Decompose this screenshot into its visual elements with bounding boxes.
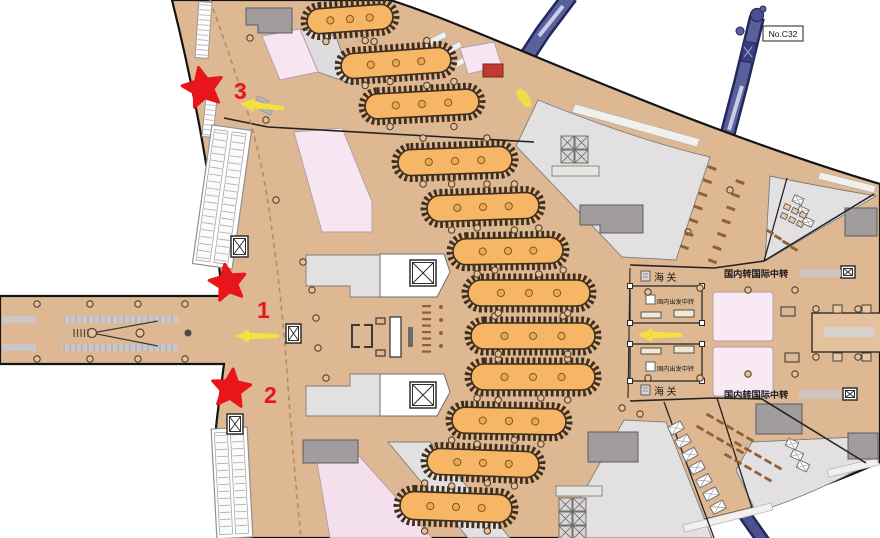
jet-bridge-gate-c32 <box>724 6 766 148</box>
scaffold-cross <box>573 512 586 525</box>
column-dot <box>34 356 40 362</box>
baggage-carousel <box>448 403 570 438</box>
elevator-icon <box>841 266 855 278</box>
elevator-icon <box>231 236 248 257</box>
transfer-icon <box>646 362 655 371</box>
column-dot <box>792 287 798 293</box>
scaffold-cross <box>559 526 572 538</box>
baggage-carousel <box>468 361 599 394</box>
customs-icon <box>641 385 650 395</box>
column-dot <box>511 437 517 443</box>
scaffold-cross <box>559 512 572 525</box>
column-dot <box>474 225 480 231</box>
scaffold-cross <box>573 498 586 511</box>
column-dot <box>484 528 490 534</box>
column-dot <box>362 37 368 43</box>
column-dot <box>424 37 430 43</box>
column-dot <box>474 395 480 401</box>
baggage-carousel <box>361 85 484 123</box>
scaffold-cross <box>559 498 572 511</box>
column-dot <box>362 82 368 88</box>
transfer-icon <box>646 295 655 304</box>
elevator-icon <box>843 388 857 400</box>
column-dot <box>247 35 253 41</box>
baggage-carousel <box>394 142 516 179</box>
elevator-icon <box>286 324 301 343</box>
blurred-text-bar <box>799 269 841 278</box>
elevator-icon <box>410 382 436 408</box>
column-dot <box>273 197 279 203</box>
column-dot <box>424 82 430 88</box>
column-dot <box>474 271 480 277</box>
marker-number-1: 1 <box>257 297 270 323</box>
column-dot <box>323 38 329 44</box>
column-dot <box>300 259 306 265</box>
column-dot <box>451 78 457 84</box>
blurred-text-bar <box>799 390 841 399</box>
column-dot <box>560 267 566 273</box>
moving-walkway <box>2 316 36 323</box>
intl-transfer-label-lower: 国内转国际中转 <box>724 389 788 400</box>
marker-number-3: 3 <box>234 78 247 104</box>
scaffold-cross <box>575 136 588 149</box>
column-dot <box>448 227 454 233</box>
column-dot <box>495 310 501 316</box>
escalator-bank-lower <box>211 427 253 538</box>
baggage-carousel <box>337 43 456 83</box>
column-dot <box>135 356 141 362</box>
column-dot <box>565 310 571 316</box>
column-dot <box>484 480 490 486</box>
column-dot <box>511 483 517 489</box>
domestic-transfer-label-upper: 国内出发中转 <box>657 298 694 306</box>
info-desk <box>390 317 401 357</box>
customs-icon <box>641 271 650 281</box>
terminal-floor-plan-screenshot: 国内出发中转 国内出发中转 海关 海关 国内转国际中转 国内转国际中转 <box>0 0 880 538</box>
column-dot <box>536 225 542 231</box>
column-dot <box>697 285 703 291</box>
blurred-text-bar <box>824 327 874 337</box>
column-dot <box>421 480 427 486</box>
column-dot <box>492 267 498 273</box>
transfer-desk <box>674 346 694 353</box>
column-dot <box>745 371 751 377</box>
transfer-desk <box>641 348 661 354</box>
column-dot <box>565 397 571 403</box>
scaffold-cross <box>561 150 574 163</box>
svg-text:海关: 海关 <box>654 271 679 284</box>
column-dot <box>565 351 571 357</box>
column-dot <box>619 405 625 411</box>
jet-bridge-top-center <box>526 0 570 58</box>
column-dot <box>538 441 544 447</box>
column-dot <box>182 301 188 307</box>
column-dot <box>135 301 141 307</box>
pink-transfer-zone-upper <box>713 292 773 341</box>
column-dot <box>474 441 480 447</box>
moving-walkway <box>62 316 178 323</box>
column-dot <box>813 354 819 360</box>
column-dot <box>87 301 93 307</box>
column-dot <box>448 483 454 489</box>
column-dot <box>448 181 454 187</box>
moving-walkway <box>2 344 36 351</box>
column-dot <box>420 181 426 187</box>
column-dot <box>387 78 393 84</box>
column-dot <box>645 375 651 381</box>
column-dot <box>727 187 733 193</box>
column-dot <box>745 287 751 293</box>
baggage-carousel <box>465 277 594 310</box>
column-dot <box>792 371 798 377</box>
column-dot <box>536 271 542 277</box>
pink-transfer-zone-lower <box>713 347 773 396</box>
scaffold-cross <box>575 150 588 163</box>
gate-label: No.C32 <box>763 26 803 41</box>
column-dot <box>309 287 315 293</box>
column-dot <box>637 411 643 417</box>
column-dot <box>387 123 393 129</box>
column-dot <box>323 375 329 381</box>
column-dot <box>511 227 517 233</box>
column-dot <box>451 123 457 129</box>
svg-text:海关: 海关 <box>654 385 679 398</box>
column-dot <box>371 38 377 44</box>
column-dot <box>855 306 861 312</box>
intl-transfer-label-upper: 国内转国际中转 <box>724 268 788 279</box>
column-dot <box>420 135 426 141</box>
terminal-floor-plan-map: 国内出发中转 国内出发中转 海关 海关 国内转国际中转 国内转国际中转 <box>0 0 880 538</box>
column-dot <box>34 301 40 307</box>
moving-walkway <box>62 344 178 351</box>
column-dot <box>484 181 490 187</box>
column-dot <box>813 306 819 312</box>
baggage-carousel <box>396 487 516 526</box>
marker-number-2: 2 <box>264 382 277 408</box>
domestic-transfer-label-lower: 国内出发中转 <box>657 365 694 373</box>
column-dot <box>263 117 269 123</box>
column-dot <box>538 395 544 401</box>
red-unit-block <box>483 64 503 77</box>
column-dot <box>697 375 703 381</box>
baggage-carousel <box>449 233 567 268</box>
column-dot <box>448 437 454 443</box>
elevator-icon <box>410 260 436 286</box>
column-dot <box>182 356 188 362</box>
column-dot <box>855 354 861 360</box>
column-dot <box>87 356 93 362</box>
column-dot <box>315 345 321 351</box>
column-dot <box>421 528 427 534</box>
scaffold-cross <box>561 136 574 149</box>
scaffold-cross <box>573 526 586 538</box>
column-dot <box>484 135 490 141</box>
baggage-carousel <box>468 320 599 353</box>
transfer-desk <box>674 310 694 317</box>
column-dot <box>313 315 319 321</box>
column-dot <box>645 289 651 295</box>
transfer-desk <box>641 312 661 318</box>
elevator-icon <box>227 414 243 434</box>
column-dot <box>511 181 517 187</box>
column-dot <box>495 351 501 357</box>
column-dot <box>495 397 501 403</box>
gate-number-text: No.C32 <box>769 29 798 39</box>
